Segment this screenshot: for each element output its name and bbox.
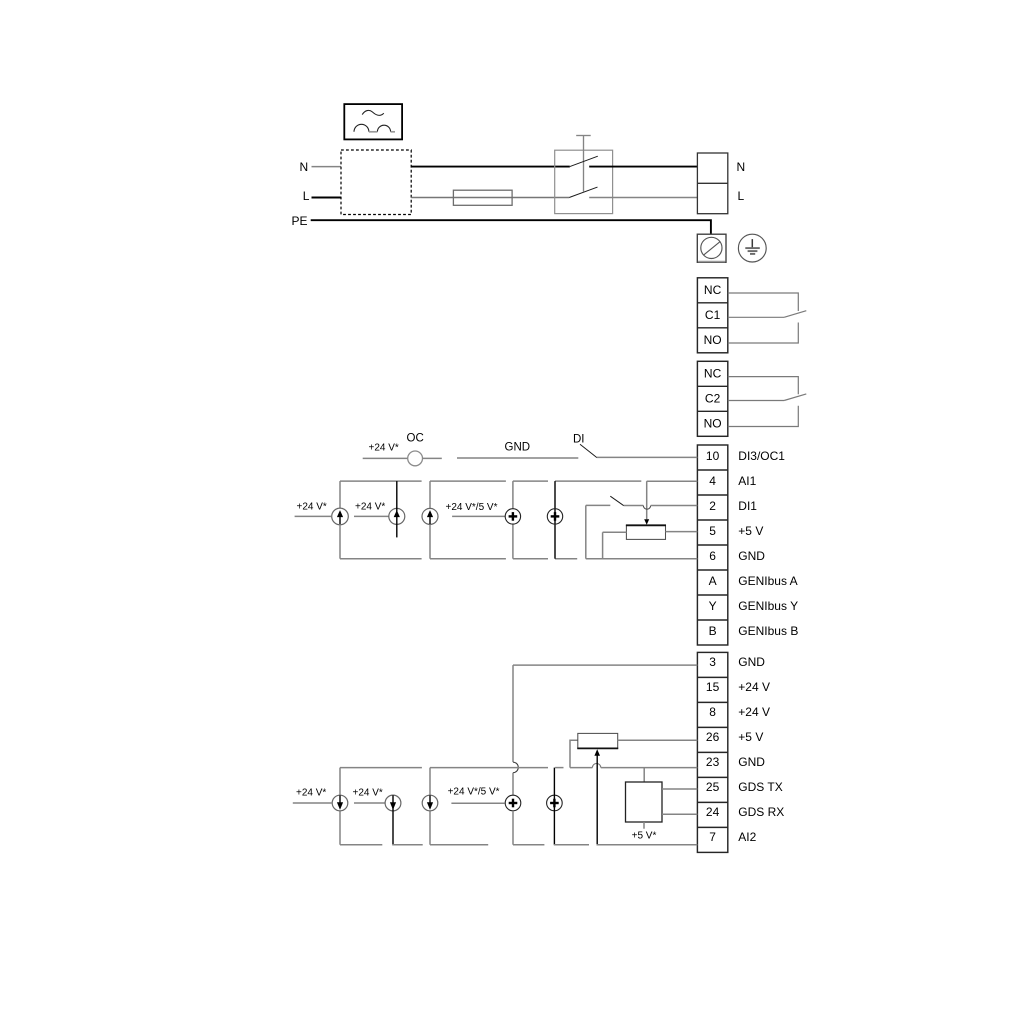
svg-text:7: 7 <box>709 830 716 844</box>
svg-text:GENIbus Y: GENIbus Y <box>738 599 798 613</box>
svg-text:23: 23 <box>706 755 720 769</box>
svg-text:AI1: AI1 <box>738 474 756 488</box>
svg-text:24: 24 <box>706 805 720 819</box>
svg-text:L: L <box>303 189 310 203</box>
svg-text:+24 V: +24 V <box>738 680 770 694</box>
svg-text:C2: C2 <box>705 391 721 405</box>
svg-text:NO: NO <box>704 416 722 430</box>
svg-text:+24 V: +24 V <box>738 705 770 719</box>
svg-text:GENIbus A: GENIbus A <box>738 574 797 588</box>
svg-text:Y: Y <box>709 599 717 613</box>
svg-text:DI3/OC1: DI3/OC1 <box>738 449 785 463</box>
svg-text:L: L <box>738 189 745 203</box>
svg-text:+24 V*: +24 V* <box>355 501 385 512</box>
svg-text:8: 8 <box>709 705 716 719</box>
svg-text:GENIbus B: GENIbus B <box>738 624 798 638</box>
svg-text:3: 3 <box>709 655 716 669</box>
svg-text:5: 5 <box>709 524 716 538</box>
svg-text:NO: NO <box>704 333 722 347</box>
svg-text:+24 V*: +24 V* <box>353 787 383 798</box>
svg-text:DI: DI <box>573 433 585 445</box>
svg-text:GND: GND <box>738 549 765 563</box>
svg-text:+24 V*/5 V*: +24 V*/5 V* <box>448 786 500 797</box>
svg-text:NC: NC <box>704 283 722 297</box>
svg-text:25: 25 <box>706 780 720 794</box>
svg-text:AI2: AI2 <box>738 830 756 844</box>
svg-text:NC: NC <box>704 366 722 380</box>
svg-text:DI1: DI1 <box>738 499 757 513</box>
svg-text:4: 4 <box>709 474 716 488</box>
svg-text:B: B <box>709 624 717 638</box>
svg-text:GDS RX: GDS RX <box>738 805 784 819</box>
svg-text:A: A <box>709 574 717 588</box>
svg-text:+24 V*/5 V*: +24 V*/5 V* <box>446 502 498 513</box>
svg-text:GND: GND <box>738 655 765 669</box>
svg-text:+5 V: +5 V <box>738 524 763 538</box>
svg-text:OC: OC <box>407 433 424 445</box>
svg-text:15: 15 <box>706 680 720 694</box>
svg-text:+24 V*: +24 V* <box>296 787 326 798</box>
svg-text:N: N <box>737 160 746 174</box>
svg-text:+5 V: +5 V <box>738 730 763 744</box>
svg-text:GDS TX: GDS TX <box>738 780 782 794</box>
svg-text:2: 2 <box>709 499 716 513</box>
svg-text:PE: PE <box>292 214 308 228</box>
svg-text:GND: GND <box>738 755 765 769</box>
svg-text:+5 V*: +5 V* <box>632 830 657 841</box>
svg-text:10: 10 <box>706 449 720 463</box>
svg-text:+24 V*: +24 V* <box>297 501 327 512</box>
svg-text:N: N <box>300 160 309 174</box>
svg-text:+24 V*: +24 V* <box>369 442 399 453</box>
svg-text:C1: C1 <box>705 308 721 322</box>
svg-text:GND: GND <box>505 441 531 453</box>
svg-text:26: 26 <box>706 730 720 744</box>
svg-text:6: 6 <box>709 549 716 563</box>
